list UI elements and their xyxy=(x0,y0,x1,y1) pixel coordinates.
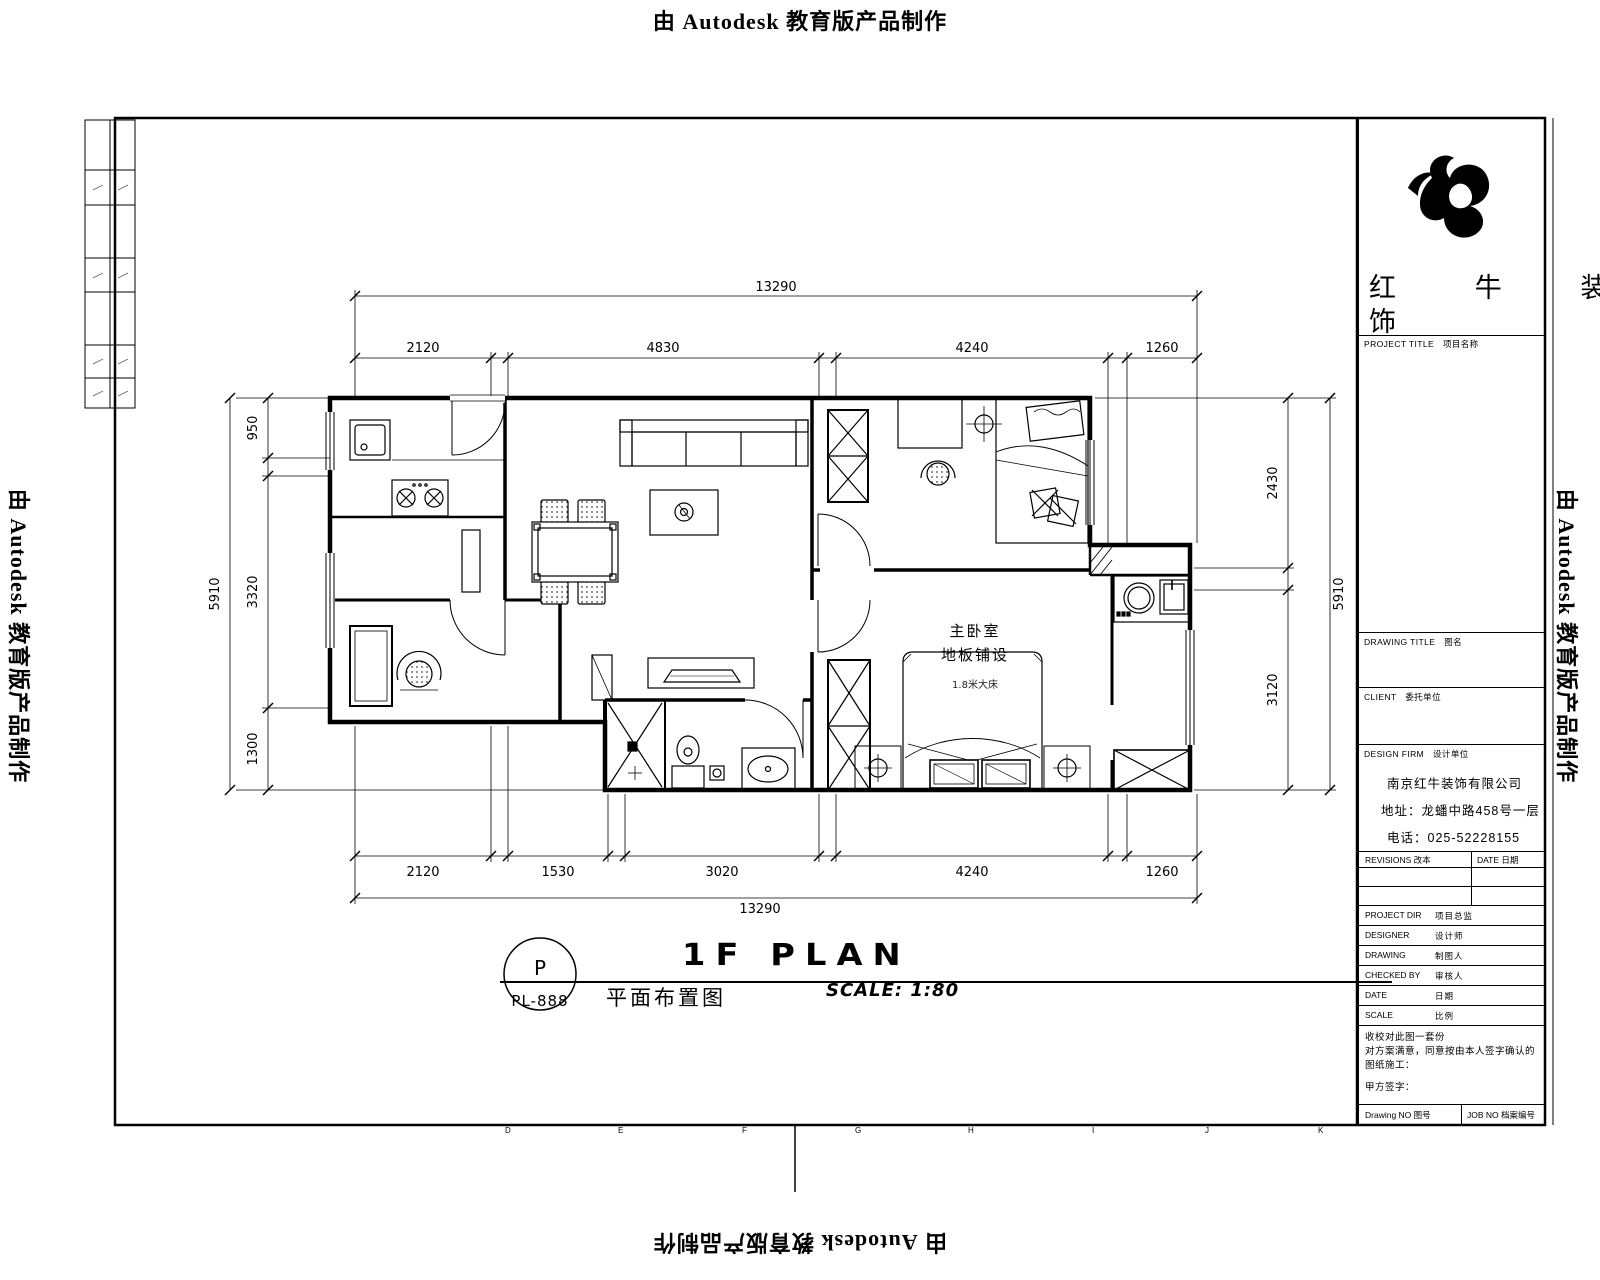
checked-by-row: CHECKED BY 审核人 xyxy=(1359,966,1545,986)
dimension-ticks xyxy=(225,291,1335,903)
dim-left-2: 3320 xyxy=(246,575,261,608)
checked-by-value: 审核人 xyxy=(1435,970,1464,982)
plan-title-cn: 平面布置图 xyxy=(606,982,726,1012)
walls-outer xyxy=(330,398,1190,790)
drawing-value: 制图人 xyxy=(1435,950,1464,962)
note-line-3: 甲方签字： xyxy=(1365,1081,1541,1095)
drawing-row: DRAWING 制图人 xyxy=(1359,946,1545,966)
dim-bot-5: 1260 xyxy=(1145,865,1178,880)
job-no-label: JOB NO 档案编号 xyxy=(1467,1109,1535,1121)
design-firm-label: DESIGN FIRM 设计单位 xyxy=(1359,745,1545,760)
dining-set xyxy=(532,500,618,604)
designer-row: DESIGNER 设计师 xyxy=(1359,926,1545,946)
room-name-label: 主卧室 xyxy=(949,622,1000,640)
dim-left-total: 5910 xyxy=(208,577,223,610)
grid-letter-j: J xyxy=(1205,1126,1209,1135)
bedroom2-furniture xyxy=(828,398,1088,543)
company-logo-cell: 红 牛 装 饰 xyxy=(1359,118,1545,336)
revisions-label: REVISIONS 改本 xyxy=(1365,854,1431,866)
grid-letter-e: E xyxy=(618,1126,623,1135)
company-address: 地址：龙蟠中路458号一层 xyxy=(1381,800,1567,819)
design-firm-cell: DESIGN FIRM 设计单位 南京红牛装饰有限公司 地址：龙蟠中路458号一… xyxy=(1359,745,1545,852)
dim-right-total: 5910 xyxy=(1332,577,1347,610)
date-row: DATE 日期 xyxy=(1359,986,1545,1006)
dim-bottom-total: 13290 xyxy=(739,902,780,917)
client-cell: CLIENT 委托单位 xyxy=(1359,688,1545,745)
dim-bot-3: 3020 xyxy=(705,865,738,880)
room-labels: 主卧室 地板铺设 1.8米大床 xyxy=(941,622,1009,691)
dim-right-1: 2430 xyxy=(1266,466,1281,499)
drawing-title-label: DRAWING TITLE 图名 xyxy=(1359,633,1545,648)
dim-top-3: 4240 xyxy=(955,341,988,356)
grid-letter-h: H xyxy=(968,1126,974,1135)
dim-left-3: 1300 xyxy=(246,732,261,765)
notes-cell: 收校对此图一套份 对方案满意，同意按由本人签字确认的图纸施工： 甲方签字： xyxy=(1359,1026,1545,1105)
grid-letter-f: F xyxy=(742,1126,747,1135)
legend-strip xyxy=(85,120,135,408)
drawing-label: DRAWING xyxy=(1365,950,1406,960)
walls-interior xyxy=(330,398,1190,790)
master-bedroom-furniture xyxy=(828,652,1090,790)
drawing-no-label: Drawing NO 图号 xyxy=(1365,1109,1431,1121)
revision-row-1 xyxy=(1359,868,1545,887)
footer-divider xyxy=(1461,1105,1462,1125)
date-value: 日期 xyxy=(1435,990,1454,1002)
dim-left-1: 950 xyxy=(246,416,261,441)
dim-top-2: 4830 xyxy=(646,341,679,356)
designer-value: 设计师 xyxy=(1435,930,1464,942)
doors xyxy=(450,393,870,758)
dim-right-2: 3120 xyxy=(1266,673,1281,706)
revision-row-2 xyxy=(1359,887,1545,906)
note-line-2: 对方案满意，同意按由本人签字确认的图纸施工： xyxy=(1365,1045,1541,1073)
revisions-date-label: DATE 日期 xyxy=(1477,854,1518,866)
dim-bot-4: 4240 xyxy=(955,865,988,880)
dim-top-1: 2120 xyxy=(406,341,439,356)
grid-letter-k: K xyxy=(1318,1126,1323,1135)
living-room-furniture xyxy=(592,420,808,700)
drawing-title-cell: DRAWING TITLE 图名 xyxy=(1359,633,1545,688)
project-title-cell: PROJECT TITLE 项目名称 xyxy=(1359,335,1545,633)
company-name: 南京红牛装饰有限公司 xyxy=(1387,773,1573,792)
room-floor-label: 地板铺设 xyxy=(941,646,1009,664)
kitchen-fixtures xyxy=(350,420,505,516)
bull-logo-icon xyxy=(1394,148,1524,258)
bathroom-fixtures xyxy=(608,703,795,790)
plan-scale: SCALE: 1:80 xyxy=(826,980,959,1001)
project-dir-row: PROJECT DIR 项目总监 xyxy=(1359,906,1545,926)
dim-bot-1: 2120 xyxy=(406,865,439,880)
company-phone: 电话：025-52228155 xyxy=(1387,827,1573,846)
study-cabinet xyxy=(462,530,480,592)
revisions-divider xyxy=(1471,852,1472,867)
small-room-furniture xyxy=(350,626,441,706)
designer-label: DESIGNER xyxy=(1365,930,1409,940)
wall-hatch xyxy=(1090,547,1112,575)
revisions-header: REVISIONS 改本 DATE 日期 xyxy=(1359,852,1545,868)
project-dir-value: 项目总监 xyxy=(1435,910,1473,922)
client-label: CLIENT 委托单位 xyxy=(1359,688,1545,703)
dim-top-total: 13290 xyxy=(755,280,796,295)
bubble-number: PL-888 xyxy=(511,992,568,1010)
scale-row: SCALE 比例 xyxy=(1359,1006,1545,1026)
annex-fixtures xyxy=(1114,576,1190,790)
project-title-label: PROJECT TITLE 项目名称 xyxy=(1359,335,1545,350)
footer-row: Drawing NO 图号 JOB NO 档案编号 xyxy=(1359,1105,1545,1125)
title-block: 红 牛 装 饰 PROJECT TITLE 项目名称 DRAWING TITLE… xyxy=(1357,118,1545,1125)
note-line-1: 收校对此图一套份 xyxy=(1365,1031,1541,1045)
scale-label: SCALE xyxy=(1365,1010,1393,1020)
grid-letter-i: I xyxy=(1092,1126,1094,1135)
dim-bot-2: 1530 xyxy=(541,865,574,880)
project-dir-label: PROJECT DIR xyxy=(1365,910,1422,920)
grid-letter-g: G xyxy=(855,1126,861,1135)
date-label: DATE xyxy=(1365,990,1387,1000)
scale-value: 比例 xyxy=(1435,1010,1454,1022)
dim-top-4: 1260 xyxy=(1145,341,1178,356)
company-name-cn-2: 饰 xyxy=(1369,300,1396,339)
windows xyxy=(325,412,1195,745)
grid-letter-d: D xyxy=(505,1126,511,1135)
plan-title: 1F PLAN xyxy=(682,938,911,973)
dimension-lines xyxy=(230,290,1336,904)
room-bed-label: 1.8米大床 xyxy=(952,678,998,691)
checked-by-label: CHECKED BY xyxy=(1365,970,1420,980)
bubble-letter: P xyxy=(534,956,546,980)
